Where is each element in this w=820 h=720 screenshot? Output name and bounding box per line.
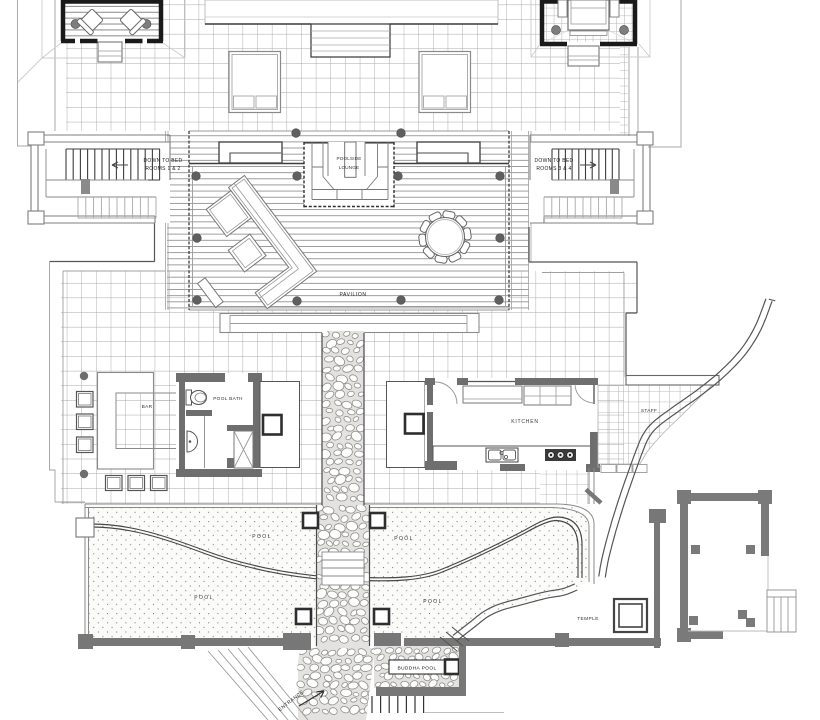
svg-text:BAR: BAR [142, 404, 153, 410]
svg-text:POOL: POOL [194, 595, 214, 601]
svg-text:POOL: POOL [252, 534, 272, 540]
svg-text:POOL: POOL [423, 599, 443, 605]
svg-text:TEMPLE: TEMPLE [577, 616, 599, 622]
svg-text:POOL BATH: POOL BATH [213, 396, 243, 402]
svg-text:ROOMS 3 & 4: ROOMS 3 & 4 [536, 166, 571, 172]
svg-text:STAFF: STAFF [641, 408, 657, 414]
svg-text:LOUNGE: LOUNGE [339, 165, 360, 170]
svg-text:POOLSIDE: POOLSIDE [336, 156, 361, 161]
svg-text:PAVILION: PAVILION [339, 292, 366, 298]
svg-text:ROOMS 1 & 2: ROOMS 1 & 2 [145, 166, 180, 172]
svg-text:POOL: POOL [394, 536, 414, 542]
svg-text:DOWN TO BED: DOWN TO BED [535, 158, 574, 164]
svg-text:BUDDHA POOL: BUDDHA POOL [397, 666, 436, 672]
svg-text:KITCHEN: KITCHEN [511, 419, 539, 425]
svg-text:DOWN TO BED: DOWN TO BED [144, 158, 183, 164]
